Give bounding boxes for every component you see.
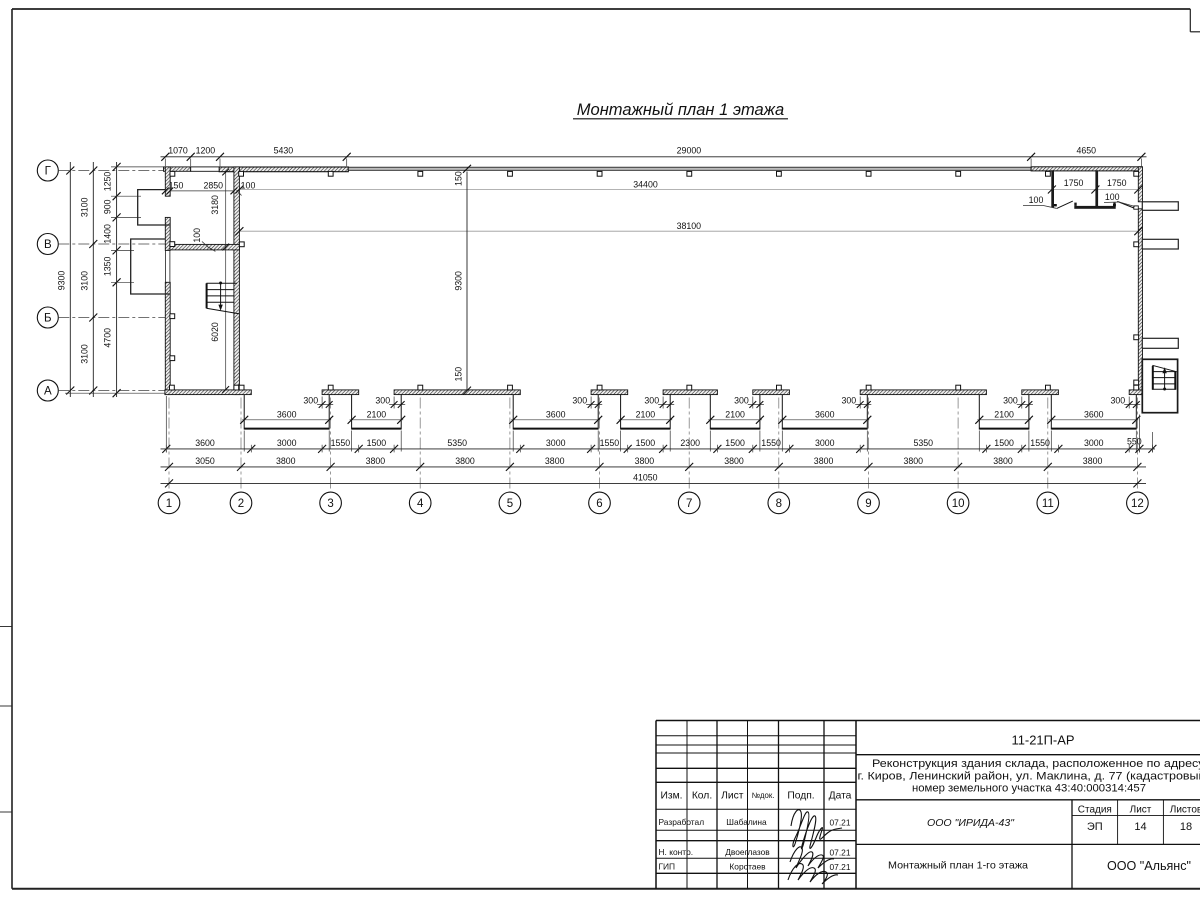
svg-text:3800: 3800 xyxy=(635,456,655,466)
svg-text:3000: 3000 xyxy=(277,438,297,448)
svg-text:1550: 1550 xyxy=(600,438,620,448)
svg-text:3600: 3600 xyxy=(277,409,297,419)
svg-text:3800: 3800 xyxy=(993,456,1013,466)
svg-text:11-21П-АР: 11-21П-АР xyxy=(1012,733,1075,748)
svg-text:ООО "ИРИДА-43": ООО "ИРИДА-43" xyxy=(927,817,1015,829)
svg-text:Коротаев: Коротаев xyxy=(729,861,766,871)
svg-text:Г: Г xyxy=(45,166,52,178)
svg-text:Лист: Лист xyxy=(1130,805,1152,816)
svg-text:3800: 3800 xyxy=(366,456,386,466)
svg-text:Лист: Лист xyxy=(721,791,744,802)
svg-text:Шабалина: Шабалина xyxy=(726,817,767,827)
svg-text:3800: 3800 xyxy=(1083,456,1103,466)
svg-text:ГИП: ГИП xyxy=(659,861,676,871)
svg-text:Монтажный план 1 этажа: Монтажный план 1 этажа xyxy=(577,101,784,119)
svg-text:12: 12 xyxy=(1131,498,1144,510)
svg-text:5430: 5430 xyxy=(274,146,294,156)
svg-text:Изм.: Изм. xyxy=(660,791,682,802)
svg-text:10: 10 xyxy=(952,498,965,510)
svg-text:1500: 1500 xyxy=(725,438,745,448)
svg-text:1550: 1550 xyxy=(761,438,781,448)
svg-text:150: 150 xyxy=(169,180,184,190)
svg-text:Реконструкция здания склада, р: Реконструкция здания склада, расположенн… xyxy=(872,758,1200,770)
svg-text:3000: 3000 xyxy=(546,438,566,448)
svg-text:Двоеглазов: Двоеглазов xyxy=(725,847,770,857)
svg-text:г. Киров, Ленинский район, ул.: г. Киров, Ленинский район, ул. Маклина, … xyxy=(858,771,1200,783)
svg-text:Подп.: Подп. xyxy=(787,791,814,802)
svg-text:6020: 6020 xyxy=(210,322,220,342)
svg-text:3800: 3800 xyxy=(814,456,834,466)
svg-text:5: 5 xyxy=(507,498,513,510)
svg-text:1: 1 xyxy=(166,498,172,510)
svg-text:300: 300 xyxy=(1111,395,1126,405)
svg-text:3: 3 xyxy=(327,498,333,510)
svg-text:2100: 2100 xyxy=(636,409,656,419)
svg-text:300: 300 xyxy=(303,395,318,405)
svg-text:7: 7 xyxy=(686,498,692,510)
svg-text:2100: 2100 xyxy=(725,409,745,419)
svg-text:3800: 3800 xyxy=(904,456,924,466)
svg-text:1070: 1070 xyxy=(168,146,188,156)
svg-text:1400: 1400 xyxy=(102,224,112,244)
svg-text:1500: 1500 xyxy=(994,438,1014,448)
svg-text:300: 300 xyxy=(375,395,390,405)
svg-text:3050: 3050 xyxy=(195,456,215,466)
svg-text:150: 150 xyxy=(453,171,463,186)
svg-text:Б: Б xyxy=(44,313,52,325)
svg-text:2: 2 xyxy=(238,498,244,510)
svg-text:3800: 3800 xyxy=(455,456,475,466)
svg-text:2100: 2100 xyxy=(367,409,387,419)
svg-text:9300: 9300 xyxy=(453,271,463,291)
svg-text:5350: 5350 xyxy=(447,438,467,448)
svg-text:3180: 3180 xyxy=(210,195,220,215)
svg-text:2100: 2100 xyxy=(994,409,1014,419)
svg-text:1550: 1550 xyxy=(331,438,351,448)
svg-text:1350: 1350 xyxy=(102,257,112,277)
svg-text:100: 100 xyxy=(1029,195,1044,205)
svg-text:100: 100 xyxy=(192,228,202,243)
svg-text:100: 100 xyxy=(241,180,256,190)
svg-text:14: 14 xyxy=(1134,821,1146,833)
svg-text:3100: 3100 xyxy=(79,344,89,364)
svg-text:ЭП: ЭП xyxy=(1087,821,1103,833)
svg-text:Монтажный план 1-го этажа: Монтажный план 1-го этажа xyxy=(888,860,1028,871)
svg-text:4700: 4700 xyxy=(102,328,112,348)
svg-text:1250: 1250 xyxy=(102,172,112,192)
svg-text:1500: 1500 xyxy=(367,438,387,448)
svg-text:3600: 3600 xyxy=(546,409,566,419)
svg-text:3600: 3600 xyxy=(1084,409,1104,419)
svg-text:1200: 1200 xyxy=(196,146,216,156)
svg-text:Листов: Листов xyxy=(1170,805,1200,816)
svg-text:3100: 3100 xyxy=(79,271,89,291)
svg-text:ООО "Альянс": ООО "Альянс" xyxy=(1107,859,1191,873)
svg-text:34400: 34400 xyxy=(633,179,658,189)
svg-text:07.21: 07.21 xyxy=(830,847,851,857)
svg-text:07.21: 07.21 xyxy=(830,862,851,872)
svg-text:300: 300 xyxy=(644,395,659,405)
svg-text:3800: 3800 xyxy=(724,456,744,466)
svg-text:100: 100 xyxy=(1105,192,1120,202)
svg-text:3600: 3600 xyxy=(195,438,215,448)
svg-text:18: 18 xyxy=(1180,821,1192,833)
svg-text:3600: 3600 xyxy=(815,409,835,419)
svg-text:2850: 2850 xyxy=(204,180,224,190)
svg-text:150: 150 xyxy=(453,367,463,382)
svg-text:41050: 41050 xyxy=(633,473,658,483)
svg-text:В: В xyxy=(44,239,52,251)
svg-text:1500: 1500 xyxy=(636,438,656,448)
svg-text:300: 300 xyxy=(1003,395,1018,405)
svg-text:Дата: Дата xyxy=(829,791,852,802)
svg-text:Разработал: Разработал xyxy=(659,817,705,827)
svg-text:А: А xyxy=(44,386,52,398)
svg-text:3800: 3800 xyxy=(276,456,296,466)
svg-text:38100: 38100 xyxy=(677,221,702,231)
svg-text:4: 4 xyxy=(417,498,424,510)
svg-text:900: 900 xyxy=(102,199,112,214)
svg-text:Н. контр.: Н. контр. xyxy=(659,847,694,857)
svg-text:№док.: №док. xyxy=(752,791,775,800)
svg-text:11: 11 xyxy=(1042,498,1054,510)
svg-text:9300: 9300 xyxy=(56,271,66,291)
svg-text:5350: 5350 xyxy=(914,438,934,448)
svg-text:Стадия: Стадия xyxy=(1078,805,1112,816)
svg-text:3000: 3000 xyxy=(815,438,835,448)
svg-text:3100: 3100 xyxy=(79,197,89,217)
svg-text:07.21: 07.21 xyxy=(830,817,851,827)
svg-text:1550: 1550 xyxy=(1030,438,1050,448)
svg-text:4650: 4650 xyxy=(1077,146,1097,156)
svg-text:3000: 3000 xyxy=(1084,438,1104,448)
svg-text:номер земельного участка 43:40: номер земельного участка 43:40:000314:45… xyxy=(912,783,1146,795)
svg-text:1750: 1750 xyxy=(1107,178,1127,188)
svg-text:29000: 29000 xyxy=(677,146,702,156)
svg-text:300: 300 xyxy=(842,395,857,405)
svg-text:2300: 2300 xyxy=(680,438,700,448)
svg-text:3800: 3800 xyxy=(545,456,565,466)
svg-text:8: 8 xyxy=(776,498,782,510)
svg-text:300: 300 xyxy=(572,395,587,405)
svg-text:1750: 1750 xyxy=(1064,178,1084,188)
svg-text:6: 6 xyxy=(596,498,602,510)
svg-text:300: 300 xyxy=(734,395,749,405)
svg-text:Кол.: Кол. xyxy=(692,791,712,802)
svg-text:9: 9 xyxy=(865,498,871,510)
